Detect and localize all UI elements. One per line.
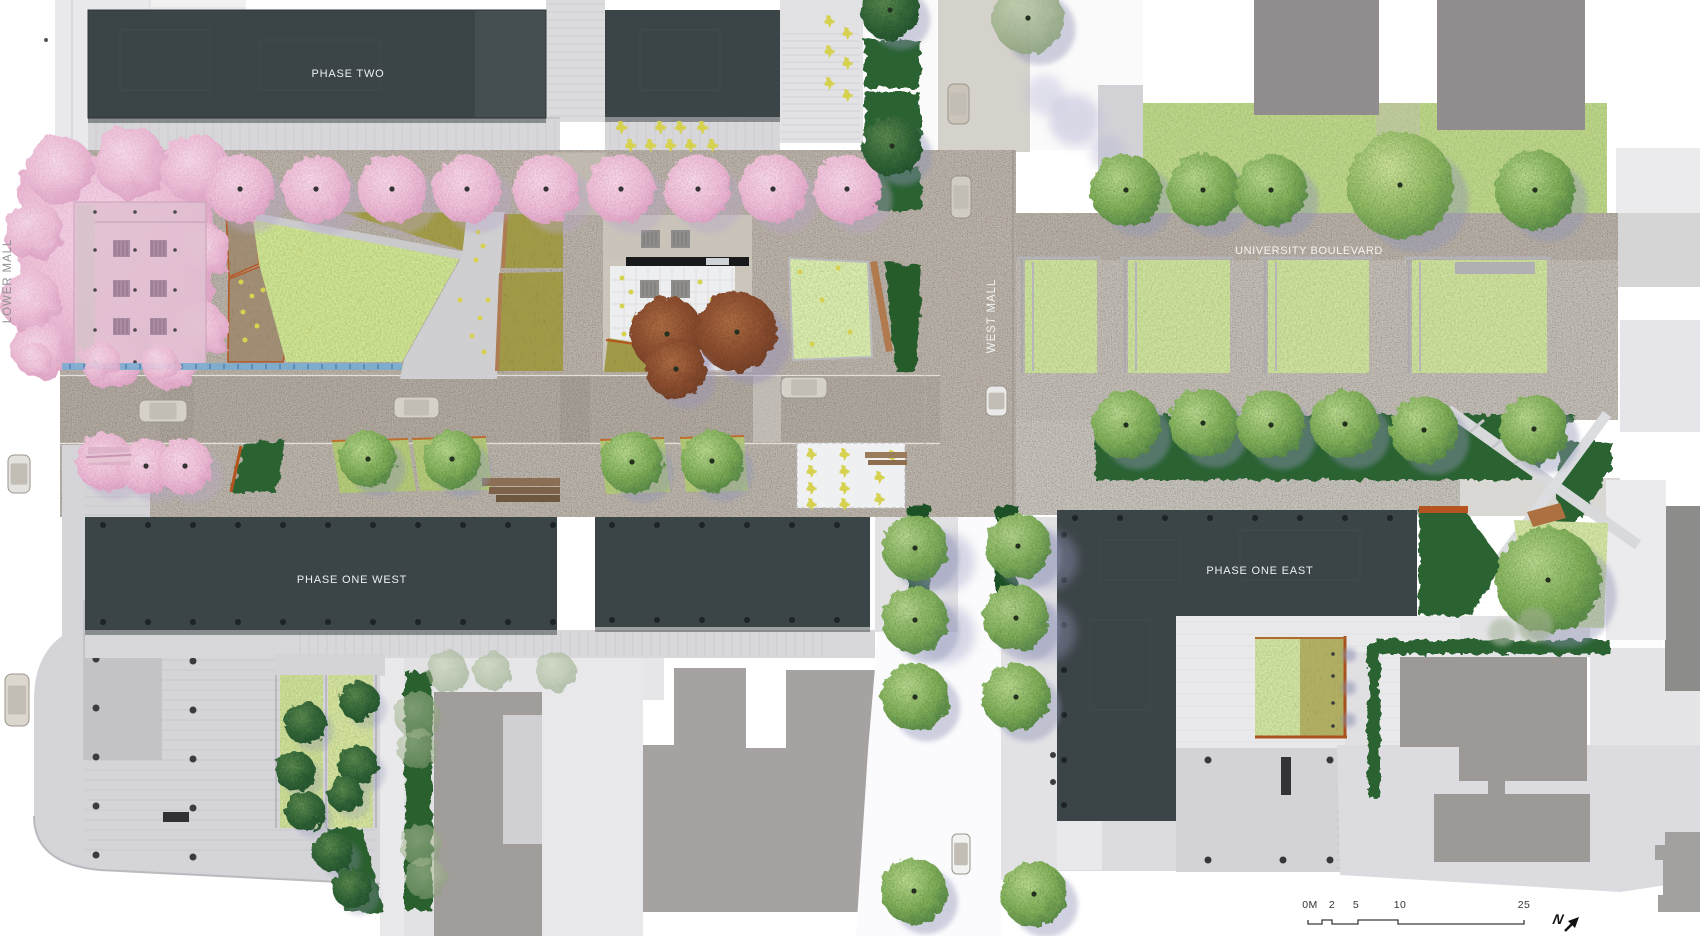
svg-text:PHASE TWO: PHASE TWO <box>311 68 384 80</box>
svg-text:0M: 0M <box>1302 899 1317 911</box>
svg-text:10: 10 <box>1394 899 1406 911</box>
svg-text:PHASE ONE EAST: PHASE ONE EAST <box>1206 565 1313 577</box>
svg-text:UNIVERSITY BOULEVARD: UNIVERSITY BOULEVARD <box>1235 245 1383 257</box>
svg-text:2: 2 <box>1329 899 1335 911</box>
svg-text:LOWER MALL: LOWER MALL <box>2 239 14 323</box>
svg-text:5: 5 <box>1353 899 1359 911</box>
svg-text:PHASE ONE WEST: PHASE ONE WEST <box>297 574 407 586</box>
svg-text:WEST MALL: WEST MALL <box>986 279 998 353</box>
svg-text:25: 25 <box>1518 899 1530 911</box>
